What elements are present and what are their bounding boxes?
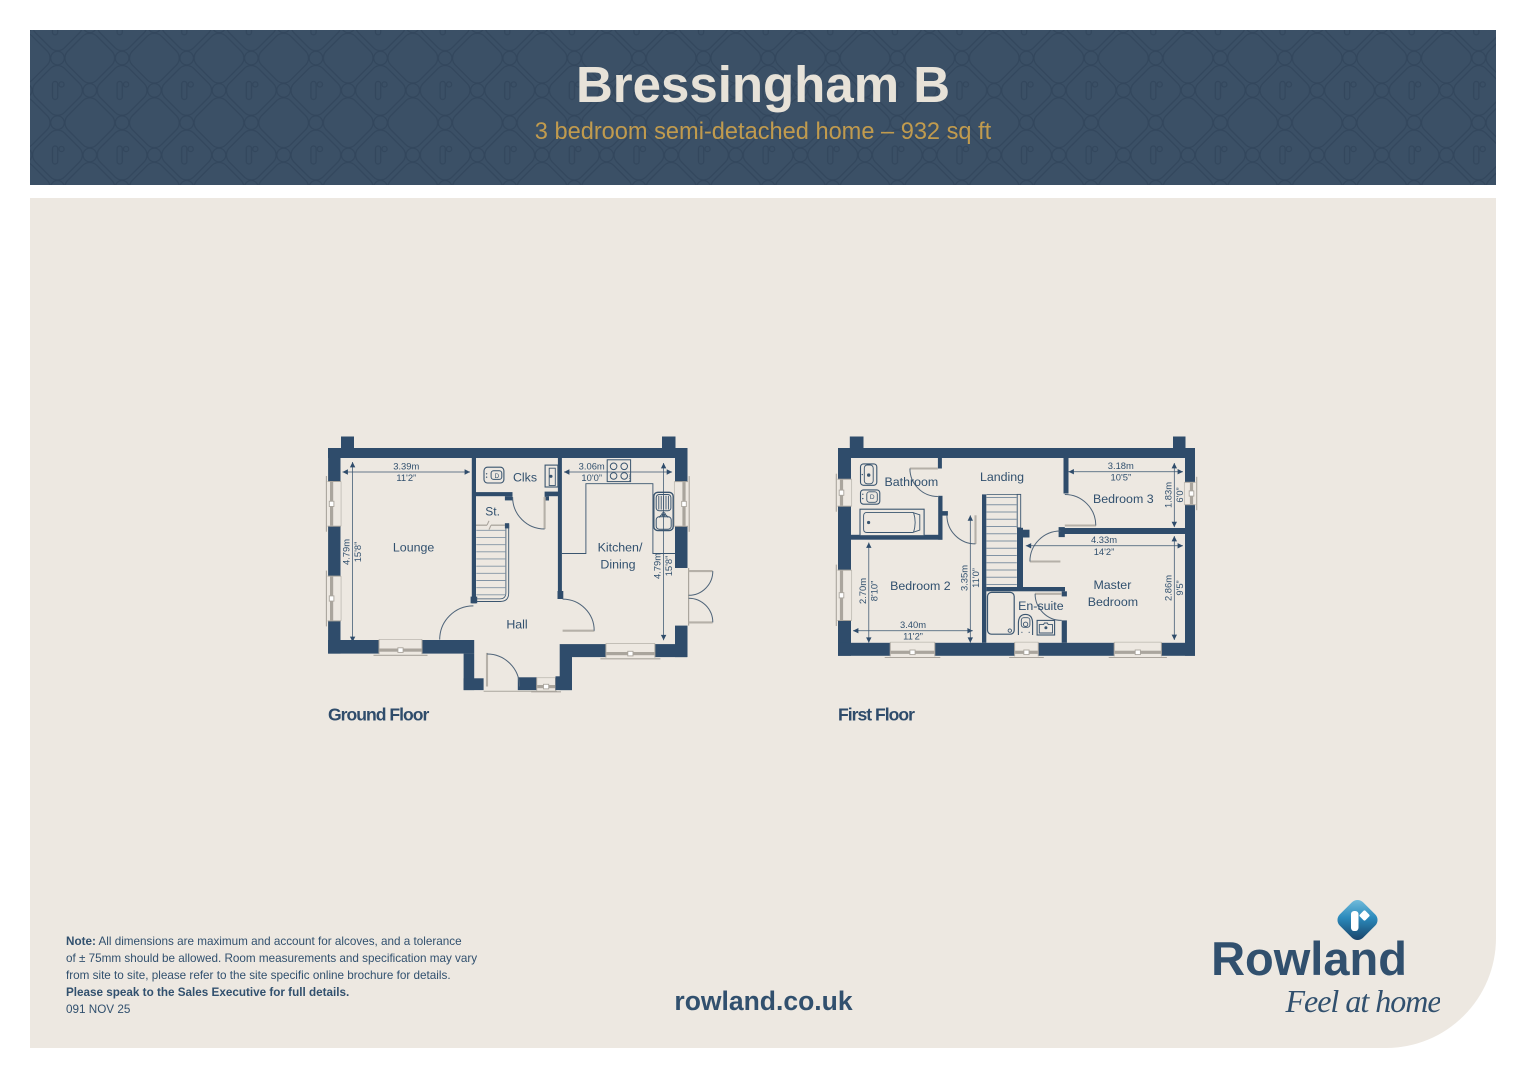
svg-text:3.06m: 3.06m xyxy=(579,460,605,471)
svg-text:Feel at home: Feel at home xyxy=(1284,983,1440,1019)
svg-text:Bedroom 3: Bedroom 3 xyxy=(1093,492,1154,506)
svg-text:11'2”: 11'2” xyxy=(903,631,923,642)
svg-text:4.79m: 4.79m xyxy=(652,553,663,579)
svg-text:10'5”: 10'5” xyxy=(1111,472,1132,483)
svg-text:Bedroom 2: Bedroom 2 xyxy=(890,579,951,593)
svg-text:15'8”: 15'8” xyxy=(352,542,363,563)
svg-text:4.33m: 4.33m xyxy=(1091,534,1117,545)
svg-text:2.86m: 2.86m xyxy=(1162,575,1173,601)
svg-text:Dining: Dining xyxy=(600,558,635,572)
svg-text:Master: Master xyxy=(1093,578,1131,592)
svg-text:11'0”: 11'0” xyxy=(970,568,981,588)
svg-text:14'2”: 14'2” xyxy=(1094,546,1115,557)
svg-text:Rowland: Rowland xyxy=(1211,932,1407,985)
svg-text:Clks: Clks xyxy=(513,471,537,485)
svg-text:3.18m: 3.18m xyxy=(1108,460,1134,471)
svg-text:2.70m: 2.70m xyxy=(857,578,868,604)
svg-text:Hall: Hall xyxy=(506,618,527,632)
svg-text:3.39m: 3.39m xyxy=(393,460,419,471)
svg-text:4.79m: 4.79m xyxy=(341,539,352,565)
svg-text:D: D xyxy=(494,473,499,480)
svg-text:D: D xyxy=(870,494,875,501)
svg-text:1.83m: 1.83m xyxy=(1162,482,1173,508)
svg-text:Kitchen/: Kitchen/ xyxy=(598,541,643,555)
svg-text:Bathroom: Bathroom xyxy=(885,475,939,489)
svg-text:15'8”: 15'8” xyxy=(663,556,674,577)
svg-text:3.40m: 3.40m xyxy=(900,619,926,630)
svg-text:En-suite: En-suite xyxy=(1018,599,1064,613)
svg-text:11'2”: 11'2” xyxy=(396,472,416,483)
svg-text:Bedroom: Bedroom xyxy=(1088,595,1138,609)
svg-text:St.: St. xyxy=(485,504,500,518)
svg-text:6'0”: 6'0” xyxy=(1174,487,1185,502)
svg-text:Lounge: Lounge xyxy=(393,541,434,555)
svg-text:9'5”: 9'5” xyxy=(1174,580,1185,595)
svg-text:10'0”: 10'0” xyxy=(581,472,602,483)
svg-text:First Floor: First Floor xyxy=(838,705,915,725)
svg-text:Ground Floor: Ground Floor xyxy=(328,705,430,725)
svg-text:3.35m: 3.35m xyxy=(958,565,969,591)
svg-text:Landing: Landing xyxy=(980,470,1024,484)
svg-text:8'10”: 8'10” xyxy=(868,581,879,602)
